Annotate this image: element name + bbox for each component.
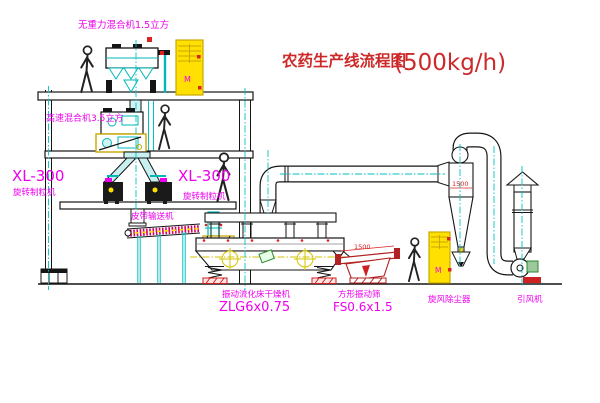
fan-name-label: 引风机 bbox=[517, 294, 543, 305]
diagram-title-capacity: (500kg/h) bbox=[394, 50, 506, 76]
sieve-model-label: FS0.6x1.5 bbox=[333, 300, 393, 314]
belt-conveyor bbox=[125, 224, 200, 283]
cabinet-1-mark: M bbox=[184, 75, 191, 84]
cyclone-separator: 1500 bbox=[449, 147, 473, 267]
main-exhaust-duct bbox=[260, 162, 449, 216]
granulator-model-right-label: XL-300 bbox=[178, 167, 230, 185]
fan-base bbox=[523, 277, 541, 283]
floor-slab-top bbox=[38, 92, 253, 100]
granulator-model-left-label: XL-300 bbox=[12, 167, 64, 185]
sieve-name-label: 方形振动筛 bbox=[338, 289, 381, 300]
cyclone-name-label: 旋风除尘器 bbox=[428, 294, 471, 305]
dryer-hood bbox=[205, 213, 336, 222]
alarm-dot bbox=[160, 51, 164, 55]
granulator-name-right-label: 旋转制粒机 bbox=[183, 191, 226, 202]
exhaust-stack bbox=[507, 172, 538, 259]
conveyor-legs bbox=[138, 232, 185, 283]
wall-base-box bbox=[41, 269, 67, 283]
dryer-model-label: ZLG6x0.75 bbox=[219, 300, 290, 315]
belt-conveyor-label: 皮带输送机 bbox=[131, 211, 174, 222]
person-figure bbox=[159, 105, 170, 149]
dryer-name-label: 振动流化床干燥机 bbox=[222, 289, 291, 300]
control-cabinet-2: M bbox=[429, 232, 452, 283]
control-cabinet-1: M bbox=[176, 40, 203, 95]
fan-housing bbox=[511, 259, 529, 277]
stack-rain-cap bbox=[507, 172, 538, 185]
person-figure bbox=[409, 238, 420, 281]
diagram-svg: M bbox=[0, 0, 600, 403]
person-figure bbox=[81, 46, 93, 92]
induced-draft-fan bbox=[511, 259, 541, 283]
granulator-name-left-label: 旋转制粒机 bbox=[13, 187, 56, 198]
fluid-bed-dryer bbox=[190, 212, 351, 284]
gravity-mixer-label: 无重力混合机1.5立方 bbox=[78, 19, 169, 31]
cabinet-2-mark: M bbox=[435, 266, 441, 275]
fan-motor bbox=[527, 261, 538, 272]
flow-diagram-canvas: M bbox=[0, 0, 600, 403]
vibrating-sieve: 1500 bbox=[335, 243, 400, 283]
dryer-body bbox=[196, 238, 344, 251]
gravity-mixer-machine bbox=[106, 37, 170, 113]
diagram-title: 农药生产线流程图 bbox=[281, 51, 406, 70]
sieve-dimension-text: 1500 bbox=[354, 243, 371, 251]
red-mark bbox=[147, 37, 152, 42]
high-speed-mixer-label: 高速混合机3.5立方 bbox=[46, 112, 123, 124]
